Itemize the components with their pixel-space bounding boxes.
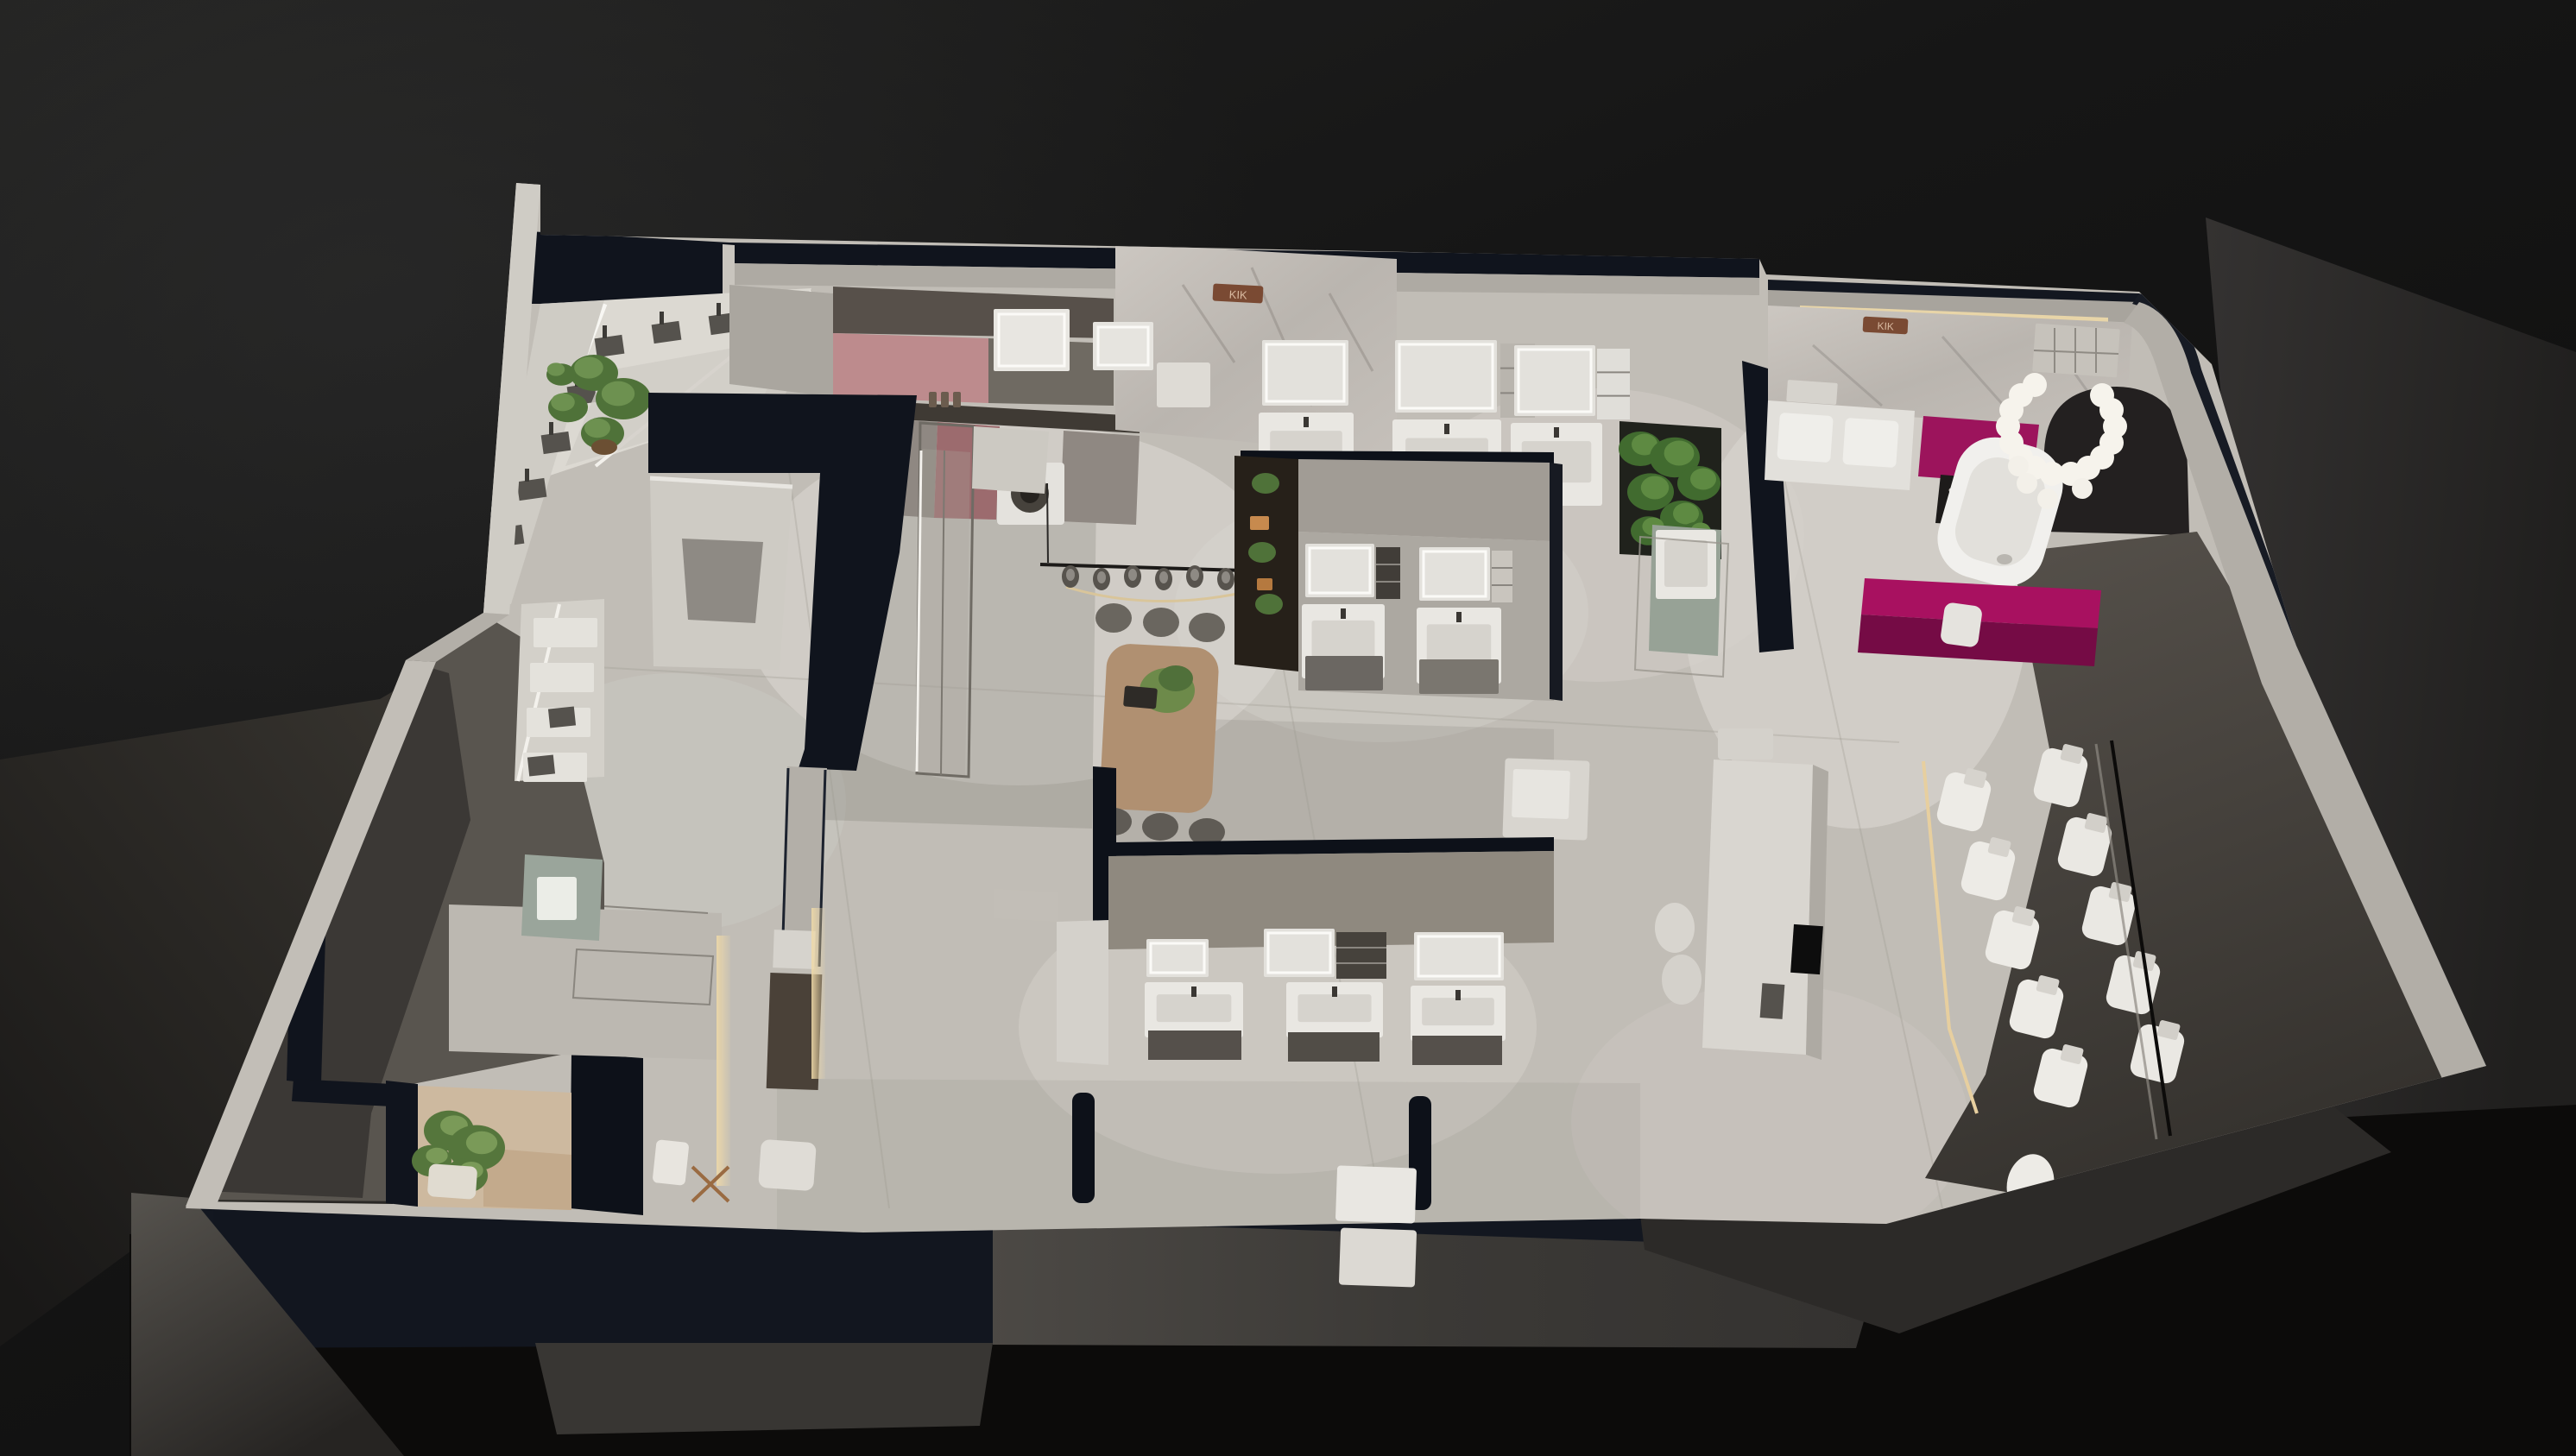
svg-text:KIK: KIK: [1228, 287, 1247, 301]
svg-text:KIK: KIK: [1877, 320, 1894, 333]
